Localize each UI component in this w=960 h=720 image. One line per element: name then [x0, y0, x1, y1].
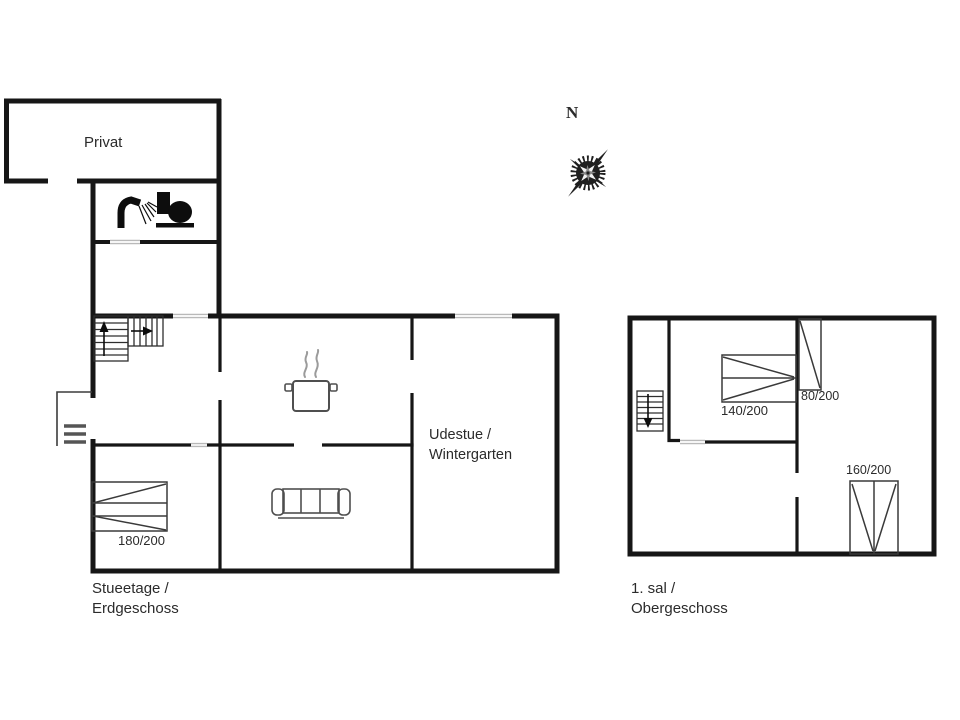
bed-size-label-140: 140/200 [721, 403, 768, 419]
compass-rose-icon [566, 147, 611, 199]
entrance-steps-icon [57, 392, 92, 446]
bed-180-icon [92, 482, 167, 531]
upper-floor-exterior-walls [630, 318, 934, 554]
bed-140-icon [722, 355, 796, 402]
toilet-icon [156, 192, 194, 228]
floor-plan-canvas: N Privat Udestue / Wintergarten 180/200 … [0, 0, 960, 720]
upper-floor-caption-line1: 1. sal / [631, 580, 675, 598]
ground-floor-caption-line1: Stueetage / [92, 580, 169, 598]
bed-80-icon [799, 319, 821, 390]
room-label-privat: Privat [84, 134, 122, 152]
shower-icon [121, 200, 157, 228]
north-label: N [566, 103, 578, 123]
stove-pot-icon [285, 350, 337, 411]
ground-floor-exterior-walls [4, 99, 560, 574]
bed-size-label-80: 80/200 [801, 389, 839, 404]
bed-160-icon [850, 481, 898, 554]
room-label-conservatory-line1: Udestue / [429, 427, 491, 444]
bathroom-wall [91, 240, 221, 243]
room-label-conservatory-line2: Wintergarten [429, 447, 512, 464]
sofa-icon [272, 489, 350, 518]
upper-floor-interior-walls [669, 318, 799, 555]
ground-floor-plan [4, 99, 560, 574]
bed-size-label-160: 160/200 [846, 463, 891, 478]
stairs-down-icon [637, 391, 663, 431]
stairs-up-icon [94, 316, 163, 361]
upper-floor-plan [630, 318, 934, 555]
bed-size-label-180: 180/200 [118, 533, 165, 549]
upper-floor-caption-line2: Obergeschoss [631, 600, 728, 618]
ground-floor-caption-line2: Erdgeschoss [92, 600, 179, 618]
